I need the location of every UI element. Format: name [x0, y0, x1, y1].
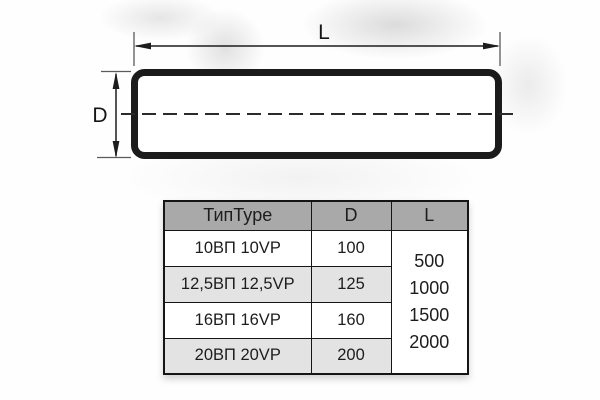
header-l: L: [391, 201, 468, 230]
l-value: 1500: [392, 302, 468, 329]
l-value: 2000: [392, 329, 468, 356]
cell-type: 16ВП 16VP: [164, 302, 311, 338]
cell-d: 100: [311, 230, 391, 266]
length-dimension-label: L: [318, 21, 330, 44]
duct-dimension-drawing: L D: [0, 0, 600, 195]
cell-type: 12,5ВП 12,5VP: [164, 266, 311, 302]
table-row: 10ВП 10VP 100 500 1000 1500 2000: [164, 230, 468, 266]
l-value: 500: [392, 248, 468, 275]
cell-type: 10ВП 10VP: [164, 230, 311, 266]
l-arrow-right-icon: [483, 43, 500, 50]
spec-table: ТипType D L 10ВП 10VP 100 500 1000 1500 …: [163, 200, 469, 375]
l-arrow-left-icon: [134, 43, 151, 50]
cell-d: 160: [311, 302, 391, 338]
cell-d: 200: [311, 338, 391, 374]
table-header-row: ТипType D L: [164, 201, 468, 230]
cell-type: 20ВП 20VP: [164, 338, 311, 374]
cell-l-merged: 500 1000 1500 2000: [391, 230, 468, 374]
l-value: 1000: [392, 275, 468, 302]
header-d: D: [311, 201, 391, 230]
d-arrow-down-icon: [113, 141, 120, 158]
d-arrow-up-icon: [113, 72, 120, 89]
diameter-dimension-label: D: [92, 104, 107, 127]
cell-d: 125: [311, 266, 391, 302]
header-type: ТипType: [164, 201, 311, 230]
